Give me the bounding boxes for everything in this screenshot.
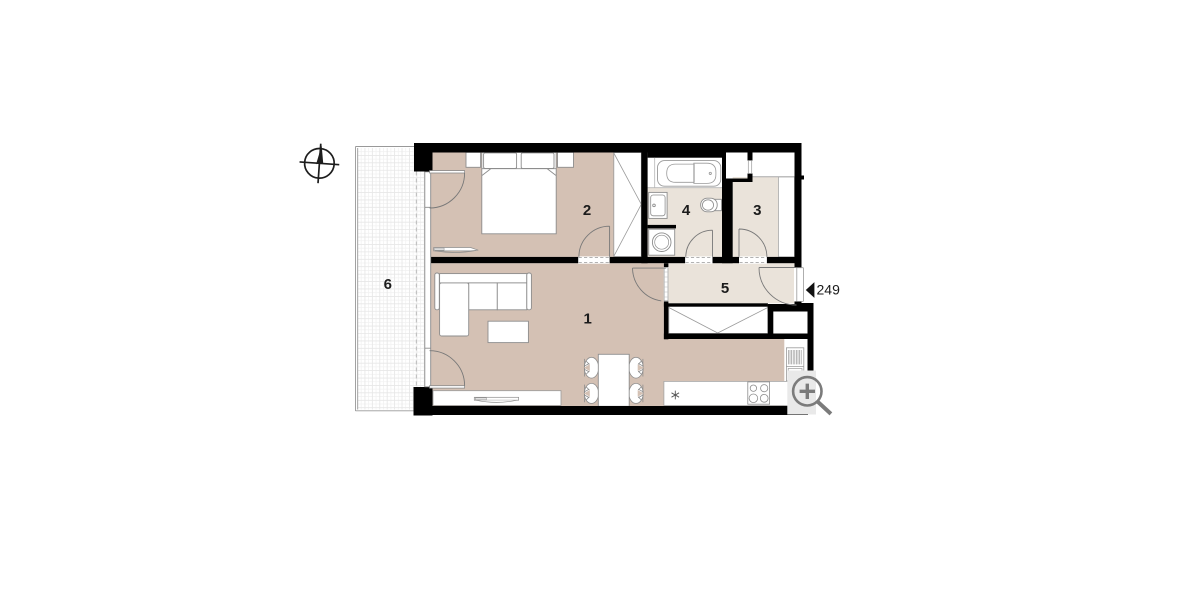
svg-text:2: 2 xyxy=(583,202,591,219)
svg-text:249: 249 xyxy=(817,281,841,297)
svg-text:4: 4 xyxy=(682,202,691,219)
svg-text:6: 6 xyxy=(384,276,392,293)
svg-text:3: 3 xyxy=(753,202,761,219)
svg-text:1: 1 xyxy=(584,311,592,328)
svg-text:5: 5 xyxy=(721,280,729,297)
